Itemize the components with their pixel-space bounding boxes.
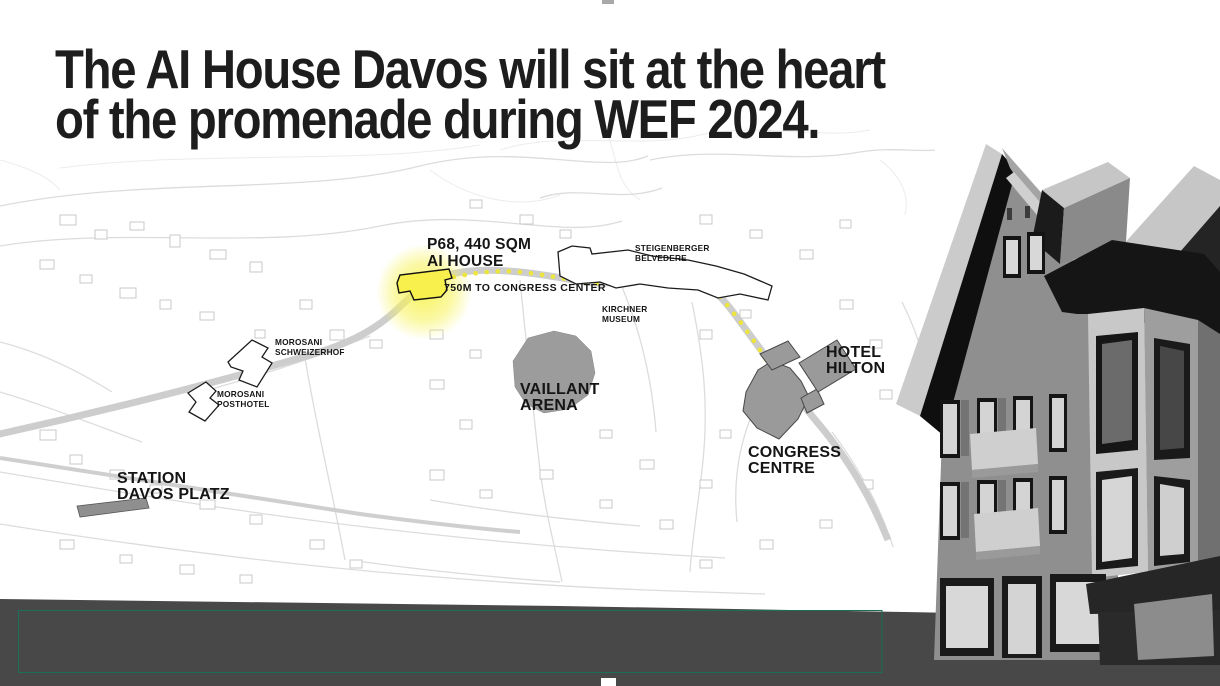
steigenberger-label: STEIGENBERGER <box>635 243 710 253</box>
slide-title: The AI House Davos will sit at the heart… <box>55 44 885 144</box>
congress-centre-label: CONGRESS <box>748 444 841 461</box>
top-handle <box>602 0 614 4</box>
house-shapes <box>896 144 1220 665</box>
hotel-hilton-label: HOTEL <box>826 344 881 361</box>
morosani-posthotel-label: MOROSANI <box>217 389 264 399</box>
ai-house-label: P68, 440 SQM <box>427 236 531 253</box>
congress-centre-label: CENTRE <box>748 460 815 477</box>
congress-centre-building <box>743 361 809 439</box>
kirchner-museum-label: MUSEUM <box>602 314 640 324</box>
station-label: DAVOS PLATZ <box>117 486 230 503</box>
slide-canvas: P68, 440 SQM AI HOUSE 750M TO CONGRESS C… <box>0 0 1220 686</box>
slide-title-line1: The AI House Davos will sit at the heart <box>55 44 885 94</box>
station-label: STATION <box>117 470 186 487</box>
morosani-posthotel-label: POSTHOTEL <box>217 399 270 409</box>
distance-label: 750M TO CONGRESS CENTER <box>444 282 606 294</box>
bottom-handle <box>601 678 616 686</box>
slide-title-line2: of the promenade during WEF 2024. <box>55 94 885 144</box>
vaillant-arena-label: VAILLANT <box>520 381 600 398</box>
steigenberger-label: BELVEDERE <box>635 253 687 263</box>
morosani-schweizerhof-label: SCHWEIZERHOF <box>275 347 345 357</box>
hotel-hilton-label: HILTON <box>826 360 885 377</box>
kirchner-museum-label: KIRCHNER <box>602 304 647 314</box>
morosani-schweizerhof-label: MOROSANI <box>275 337 322 347</box>
ai-house-label: AI HOUSE <box>427 253 504 270</box>
vaillant-arena-label: ARENA <box>520 397 578 414</box>
ai-house-illustration <box>890 142 1220 686</box>
